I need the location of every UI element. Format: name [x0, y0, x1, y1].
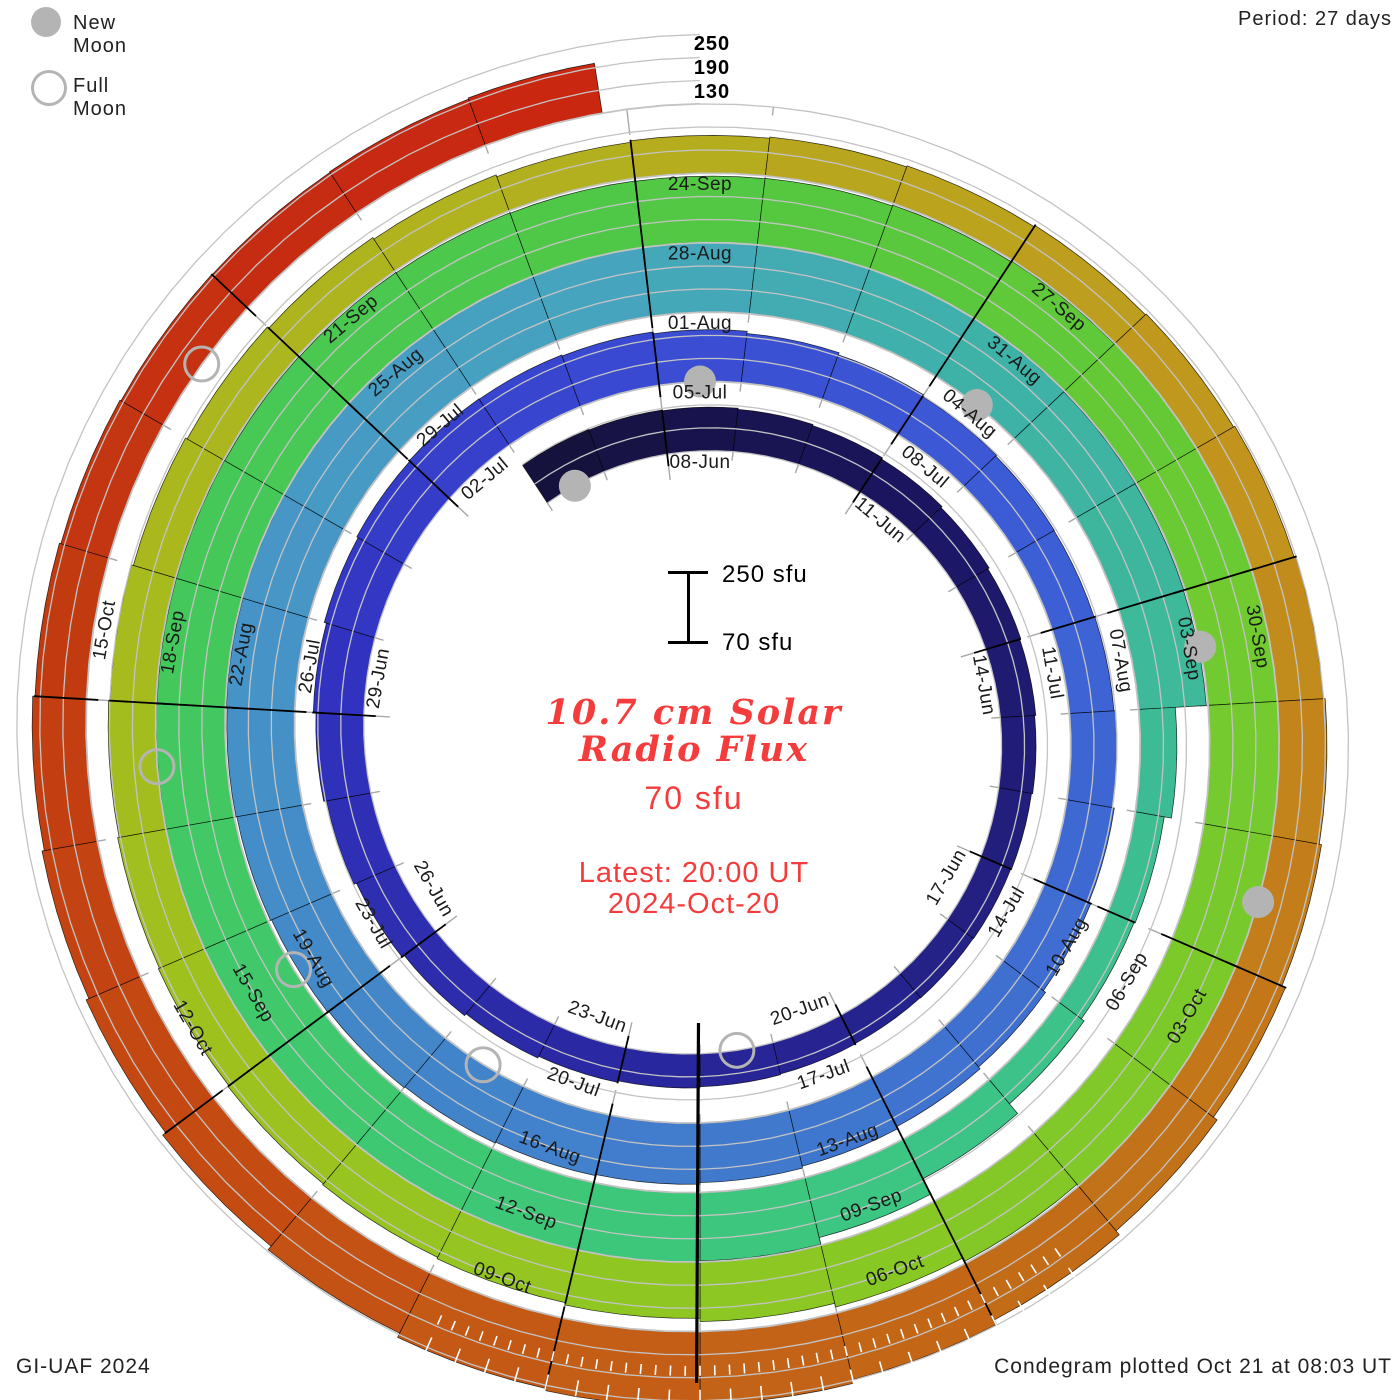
credit-label: GI-UAF 2024: [16, 1355, 151, 1379]
date-label: 23-Jun: [565, 997, 630, 1038]
date-label: 05-Jul: [673, 383, 728, 404]
new-moon-label: New Moon: [73, 12, 127, 58]
full-moon-label: Full Moon: [73, 75, 127, 121]
new-moon-marker: [559, 470, 591, 502]
scale-bar-top-label: 250 sfu: [722, 561, 808, 589]
radial-scale-130: 130: [672, 81, 752, 104]
scale-bar-bottom-label: 70 sfu: [722, 629, 793, 657]
plotted-label: Condegram plotted Oct 21 at 08:03 UT: [994, 1355, 1392, 1379]
date-label: 24-Sep: [668, 174, 732, 195]
radial-scale-190: 190: [672, 57, 752, 80]
new-moon-icon: [31, 7, 61, 37]
condegram-page: { "legend": { "new_moon": "New Moon", "f…: [0, 0, 1400, 1400]
date-label: 28-Aug: [668, 244, 732, 265]
condegram-plot: 08-Jun11-Jun14-Jun17-Jun20-Jun23-Jun26-J…: [0, 0, 1400, 1400]
date-label: 08-Jun: [669, 452, 730, 473]
date-label: 01-Aug: [668, 313, 732, 334]
period-label: Period: 27 days: [1238, 8, 1392, 31]
full-moon-icon: [31, 70, 67, 106]
new-moon-marker: [1242, 886, 1274, 918]
radial-scale-250: 250: [672, 33, 752, 56]
